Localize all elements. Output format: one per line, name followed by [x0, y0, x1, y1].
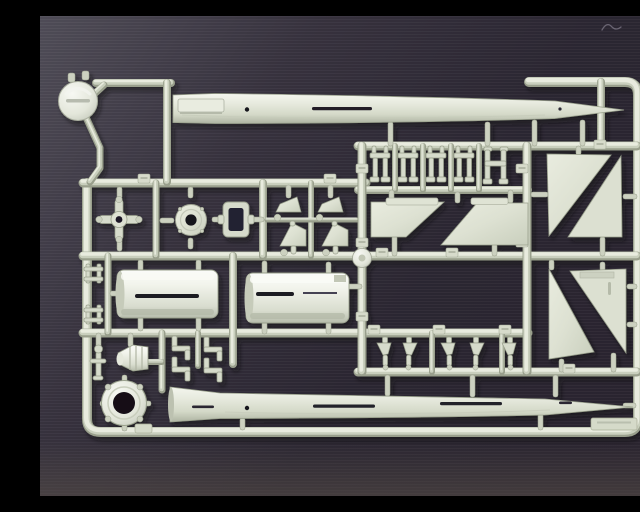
missile-top-porthole — [245, 107, 249, 111]
hub-cross-knobs — [116, 196, 122, 202]
gate-pin — [392, 236, 397, 256]
cylinder-right-slot — [256, 292, 294, 296]
gate-pin — [532, 120, 537, 146]
ring-disc-hole — [185, 214, 196, 225]
missile-bottom-porthole — [245, 406, 249, 410]
gate-pin — [138, 260, 143, 271]
h-frame-part — [485, 161, 506, 166]
wheel-ring-hole — [113, 392, 135, 414]
bracket-part-2 — [409, 177, 418, 182]
hub-cross-knobs — [116, 236, 122, 242]
ring-disc-notches — [200, 229, 204, 233]
runner-tab-mark — [327, 177, 334, 179]
wing-trapezoid-right-tab — [471, 198, 508, 205]
gate-pin — [262, 261, 267, 274]
runner-tab-mark — [359, 241, 366, 243]
sprue-photo-canvas — [40, 16, 640, 496]
gate-pin — [455, 192, 460, 203]
nozzle-feet — [508, 365, 513, 370]
label-plate-bottom-right — [591, 418, 637, 430]
runner-tab-mark — [597, 143, 604, 145]
small-fin-4-stem — [333, 246, 338, 254]
label-plate-line — [597, 422, 631, 424]
clamp-part-lower — [84, 318, 103, 322]
injection-node-core — [359, 255, 366, 262]
runner-tab-mark — [379, 251, 386, 253]
missile-top-dot — [558, 107, 561, 110]
wing-triangle-notch — [580, 272, 614, 278]
nozzle-feet — [406, 365, 411, 370]
runner-tab-mark — [141, 177, 148, 179]
nozzle-stems — [383, 355, 388, 366]
small-fin-1-stem — [286, 185, 291, 198]
bracket-part-2 — [398, 177, 407, 182]
sprue-photo: Photograph of a light grey plastic injec… — [40, 16, 640, 496]
runner-tab-mark — [359, 315, 366, 317]
h-frame-part — [483, 179, 492, 184]
gate-pin — [240, 418, 245, 430]
missile-top-hatch — [178, 99, 224, 112]
gate-pin — [611, 353, 616, 372]
cylinder-left-shadow — [121, 309, 214, 315]
wheel-ring-lugs — [137, 384, 143, 390]
missile-bottom-dash-2 — [559, 402, 572, 405]
gate-pin — [623, 194, 637, 199]
gate-pin — [196, 260, 201, 271]
runner-tab-mark — [359, 167, 366, 169]
nozzle-feet — [383, 365, 388, 370]
bracket-part-2 — [398, 153, 418, 158]
wheel-ring-lugs — [137, 416, 143, 422]
small-fin-nodes — [316, 214, 323, 221]
nozzle-feet — [447, 365, 452, 370]
clamp-part-upper — [84, 277, 103, 281]
nozzle-stems — [407, 337, 412, 343]
gate-pin — [485, 122, 490, 146]
bracket-part-4 — [454, 177, 463, 182]
clamp-part-lower — [84, 308, 103, 312]
cylinder-right-highlight — [250, 276, 345, 283]
runner-tab-mark — [519, 167, 526, 169]
wing-trapezoid-left-tab — [386, 198, 438, 205]
cylinder-right-notch — [334, 275, 346, 282]
gate-pin — [508, 190, 513, 203]
ring-disc-notches — [178, 207, 182, 211]
gate-pin — [326, 262, 331, 274]
missile-bottom-dash — [192, 406, 214, 409]
nozzle-stems — [508, 355, 513, 366]
frame-part-nubs — [248, 215, 254, 224]
bracket-part-3 — [426, 177, 435, 182]
cylinder-left-highlight — [121, 273, 214, 280]
gate-pin — [470, 375, 475, 397]
missile-bottom-tailcap — [168, 388, 174, 422]
bracket-part-3 — [426, 153, 446, 158]
missile-bottom-slot-1 — [313, 405, 375, 408]
tab-bottom-left — [135, 424, 152, 433]
chair-part-3 — [185, 371, 190, 381]
cylinder-right-shadow — [250, 313, 345, 319]
figure-part-head — [95, 345, 103, 353]
cone-part-tip — [117, 353, 124, 366]
bracket-part-1 — [381, 177, 390, 182]
gate-pin — [492, 244, 497, 256]
nozzle-stems — [383, 337, 388, 343]
figure-part — [90, 359, 106, 363]
gate-pin — [388, 122, 393, 146]
clamp-part-upper — [84, 267, 103, 271]
missile-top-slot — [312, 107, 372, 110]
frame-part-nubs — [218, 215, 224, 224]
nozzle-stems — [407, 355, 412, 366]
runner-tab-mark — [449, 251, 456, 253]
wheel-ring-lugs — [105, 416, 111, 422]
gate-pin — [538, 414, 543, 430]
cylinder-right-line — [303, 292, 337, 294]
runner-tab-mark — [502, 328, 509, 330]
chair-part-4 — [217, 372, 222, 382]
gate-pin — [531, 192, 548, 197]
dome-seam — [66, 99, 90, 103]
cylinder-left-slot — [135, 294, 199, 298]
gate-pin — [262, 322, 267, 334]
nozzle-stems — [474, 355, 479, 366]
gate-pin — [82, 71, 89, 80]
gate-pin — [576, 146, 581, 155]
hub-cross-knobs — [96, 216, 102, 222]
ring-disc-notches — [200, 207, 204, 211]
small-fin-3-stem — [290, 221, 295, 226]
wing-triangle-pinmark — [608, 282, 611, 295]
figure-part — [93, 376, 103, 380]
gate-pin — [160, 218, 174, 223]
small-fin-4-stem — [332, 221, 337, 226]
gate-pin — [138, 317, 143, 331]
small-fin-3-stem — [291, 246, 296, 254]
gate-pin — [128, 333, 133, 347]
frame-part-hole — [229, 208, 244, 231]
gate-pin — [580, 120, 585, 146]
gate-pin — [600, 237, 605, 256]
wheel-ring-lugs — [105, 384, 111, 390]
nozzle-feet — [473, 365, 478, 370]
runner-tab-mark — [566, 367, 573, 369]
chair-part-2 — [217, 351, 222, 361]
small-fin-nodes — [281, 249, 288, 256]
gate-pin — [385, 375, 390, 396]
nozzle-stems — [447, 355, 452, 366]
gate-pin — [196, 317, 201, 331]
small-fin-nodes — [323, 249, 330, 256]
bracket-part-1 — [370, 153, 390, 158]
chair-part-1 — [185, 350, 190, 360]
runner-tab-mark — [436, 328, 443, 330]
small-fin-2-stem — [328, 185, 333, 198]
gate-pin — [627, 322, 637, 327]
bracket-part-3 — [437, 177, 446, 182]
ring-disc-notches — [178, 229, 182, 233]
gate-pin — [188, 238, 193, 249]
gate-pin — [188, 187, 193, 198]
gate-pin — [68, 73, 75, 82]
nozzle-stems — [474, 337, 479, 343]
missile-bottom-slot-2 — [440, 402, 502, 405]
backdrop-bottom-light — [40, 440, 640, 496]
bracket-part-1 — [370, 177, 379, 182]
missile-top-hatch-line — [180, 112, 222, 114]
hub-cross-knobs — [136, 216, 142, 222]
bracket-part-4 — [454, 153, 474, 158]
bracket-part-4 — [465, 177, 474, 182]
runner-tab-mark — [371, 328, 378, 330]
nozzle-stems — [447, 337, 452, 343]
figure-part — [96, 352, 101, 377]
h-frame-part — [499, 179, 508, 184]
small-fin-nodes — [274, 214, 281, 221]
gate-pin — [326, 322, 331, 334]
nozzle-stems — [508, 337, 513, 343]
hub-cross-hole — [116, 216, 123, 223]
gate-pin — [627, 284, 637, 289]
gate-pin — [549, 260, 554, 270]
gate-pin — [553, 375, 558, 397]
